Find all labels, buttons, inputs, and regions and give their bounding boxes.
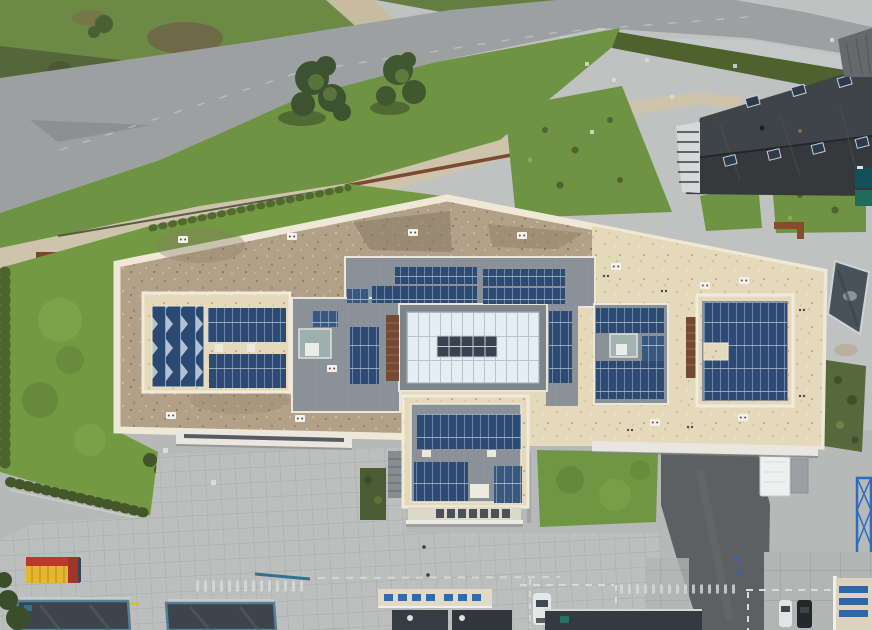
solar-array	[494, 466, 522, 503]
solar-array	[395, 267, 477, 284]
solar-array	[483, 269, 565, 286]
solar-array	[642, 336, 664, 361]
solar-array	[596, 361, 664, 399]
solar-array	[596, 308, 664, 333]
square-skylight	[610, 334, 637, 357]
aerial-photo-canvas	[0, 0, 872, 630]
shrub-bed	[360, 468, 386, 520]
dark-hall-roof	[545, 609, 702, 630]
dark-hall-roof	[166, 599, 276, 630]
dark-hall-roof	[14, 597, 130, 630]
solar-array	[417, 414, 521, 449]
annex-building	[403, 396, 528, 527]
right-solar-recess	[697, 295, 793, 406]
aerial-photo	[0, 0, 872, 630]
rust-collector-strip	[386, 315, 399, 381]
sawtooth-solar-array	[152, 306, 204, 387]
solar-array	[347, 289, 369, 303]
rooftop-equipment	[855, 190, 872, 206]
black-car	[797, 600, 812, 628]
solar-array	[483, 288, 565, 304]
cream-building-right	[833, 576, 872, 630]
loading-bays	[436, 509, 510, 518]
solar-array	[208, 308, 286, 342]
solar-array	[414, 462, 468, 501]
solar-array	[549, 311, 572, 383]
central-skylight	[399, 304, 547, 391]
solar-array	[312, 311, 338, 327]
solar-array	[372, 286, 477, 303]
bench	[797, 222, 804, 239]
bench	[774, 222, 800, 229]
solar-array	[209, 354, 286, 388]
white-box-truck	[760, 455, 808, 496]
left-solar-recess	[143, 293, 290, 392]
square-skylight	[299, 329, 331, 358]
solar-array	[350, 327, 379, 384]
white-car	[779, 600, 792, 627]
shipping-container	[26, 557, 81, 583]
rooftop-equipment	[855, 168, 872, 188]
south-lawn	[529, 450, 658, 527]
shrub-strip	[824, 360, 866, 452]
